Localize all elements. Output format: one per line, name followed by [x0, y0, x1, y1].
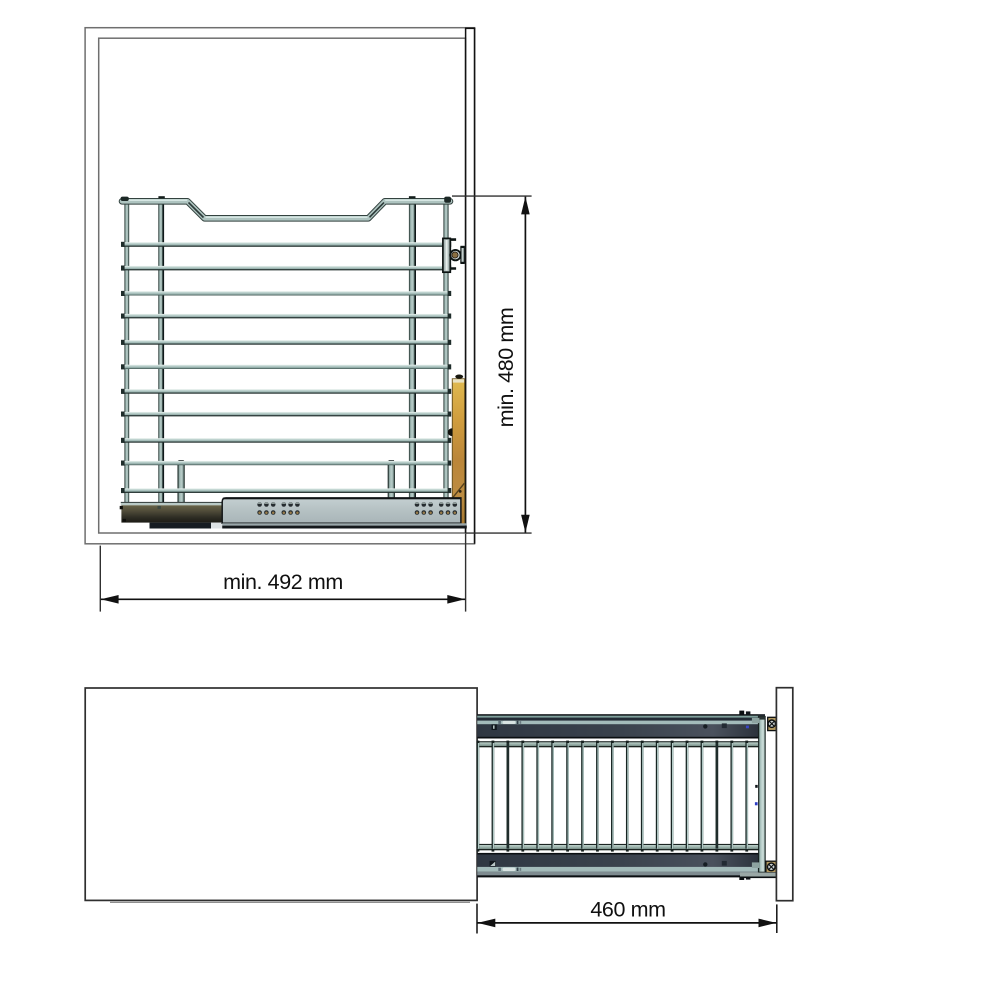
svg-text:min. 480 mm: min. 480 mm [494, 308, 518, 428]
svg-text:460 mm: 460 mm [590, 898, 665, 922]
svg-text:min. 492 mm: min. 492 mm [223, 570, 343, 594]
